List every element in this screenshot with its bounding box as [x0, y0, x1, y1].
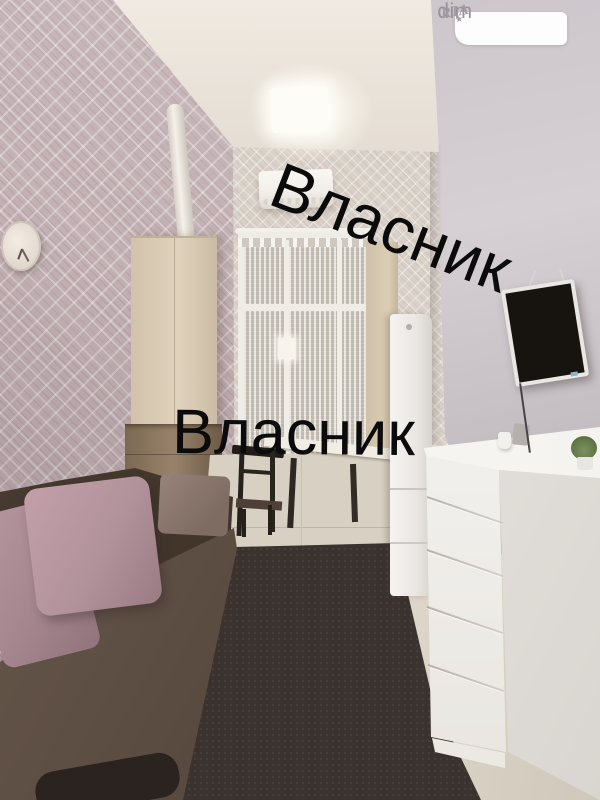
clock-minute-hand	[21, 249, 29, 262]
refrigerator-logo	[406, 324, 412, 330]
ceiling-light	[270, 86, 330, 134]
room-photo: Власник Власник dim ★ RIA	[0, 0, 600, 800]
wall-clock	[1, 221, 41, 271]
tile-grout-line-vertical	[301, 456, 302, 548]
tv-led	[570, 371, 578, 376]
refrigerator-door-line	[390, 488, 432, 490]
refrigerator-drawer-line	[390, 542, 432, 544]
plant-pot	[577, 457, 593, 470]
cushion	[157, 473, 230, 537]
chair-leg	[242, 509, 246, 537]
window-transom-bar	[240, 304, 370, 311]
dim-ria-logo-badge: dim ★ RIA	[455, 12, 567, 45]
chair-leg	[268, 505, 272, 535]
white-vase	[498, 432, 511, 449]
tv	[501, 279, 589, 387]
watermark-horizontal: Власник	[172, 401, 415, 466]
window-light-spot	[278, 338, 295, 359]
pillow	[23, 475, 164, 617]
